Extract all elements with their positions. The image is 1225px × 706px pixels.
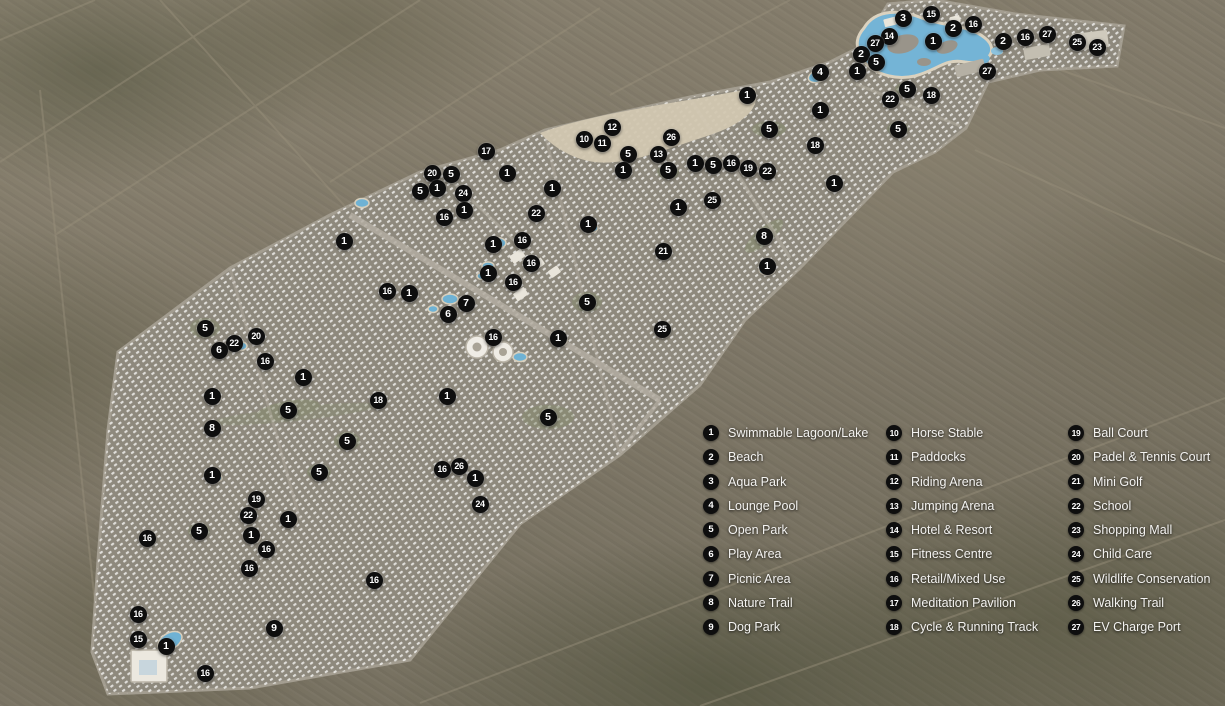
map-marker-16[interactable]: 16 bbox=[258, 541, 275, 558]
map-marker-26[interactable]: 26 bbox=[451, 458, 468, 475]
map-marker-5[interactable]: 5 bbox=[339, 433, 356, 450]
map-marker-26[interactable]: 26 bbox=[663, 129, 680, 146]
map-marker-20[interactable]: 20 bbox=[424, 165, 441, 182]
map-marker-1[interactable]: 1 bbox=[336, 233, 353, 250]
map-marker-19[interactable]: 19 bbox=[248, 491, 265, 508]
map-marker-1[interactable]: 1 bbox=[480, 265, 497, 282]
map-marker-1[interactable]: 1 bbox=[204, 467, 221, 484]
map-marker-5[interactable]: 5 bbox=[899, 81, 916, 98]
map-marker-6[interactable]: 6 bbox=[440, 306, 457, 323]
map-marker-16[interactable]: 16 bbox=[436, 209, 453, 226]
map-marker-5[interactable]: 5 bbox=[412, 183, 429, 200]
map-marker-16[interactable]: 16 bbox=[505, 274, 522, 291]
map-marker-16[interactable]: 16 bbox=[130, 606, 147, 623]
map-marker-15[interactable]: 15 bbox=[130, 631, 147, 648]
map-marker-1[interactable]: 1 bbox=[544, 180, 561, 197]
map-marker-1[interactable]: 1 bbox=[759, 258, 776, 275]
map-marker-19[interactable]: 19 bbox=[740, 160, 757, 177]
map-marker-5[interactable]: 5 bbox=[443, 166, 460, 183]
map-marker-16[interactable]: 16 bbox=[241, 560, 258, 577]
map-marker-16[interactable]: 16 bbox=[197, 665, 214, 682]
map-marker-2[interactable]: 2 bbox=[995, 33, 1012, 50]
map-marker-2[interactable]: 2 bbox=[853, 46, 870, 63]
map-marker-11[interactable]: 11 bbox=[594, 135, 611, 152]
map-marker-24[interactable]: 24 bbox=[472, 496, 489, 513]
map-marker-5[interactable]: 5 bbox=[280, 402, 297, 419]
map-marker-23[interactable]: 23 bbox=[1089, 39, 1106, 56]
map-marker-3[interactable]: 3 bbox=[895, 10, 912, 27]
map-marker-22[interactable]: 22 bbox=[240, 507, 257, 524]
map-marker-1[interactable]: 1 bbox=[158, 638, 175, 655]
map-marker-5[interactable]: 5 bbox=[197, 320, 214, 337]
map-marker-16[interactable]: 16 bbox=[379, 283, 396, 300]
map-marker-1[interactable]: 1 bbox=[849, 63, 866, 80]
map-marker-8[interactable]: 8 bbox=[756, 228, 773, 245]
map-marker-1[interactable]: 1 bbox=[485, 236, 502, 253]
map-marker-1[interactable]: 1 bbox=[826, 175, 843, 192]
map-marker-1[interactable]: 1 bbox=[615, 162, 632, 179]
map-marker-1[interactable]: 1 bbox=[670, 199, 687, 216]
map-marker-18[interactable]: 18 bbox=[807, 137, 824, 154]
map-marker-22[interactable]: 22 bbox=[528, 205, 545, 222]
map-marker-24[interactable]: 24 bbox=[455, 185, 472, 202]
map-marker-4[interactable]: 4 bbox=[812, 64, 829, 81]
map-marker-12[interactable]: 12 bbox=[604, 119, 621, 136]
map-marker-5[interactable]: 5 bbox=[705, 157, 722, 174]
map-marker-27[interactable]: 27 bbox=[1039, 26, 1056, 43]
map-marker-1[interactable]: 1 bbox=[439, 388, 456, 405]
map-marker-1[interactable]: 1 bbox=[295, 369, 312, 386]
map-marker-5[interactable]: 5 bbox=[620, 146, 637, 163]
map-marker-2[interactable]: 2 bbox=[945, 20, 962, 37]
map-marker-1[interactable]: 1 bbox=[204, 388, 221, 405]
map-marker-16[interactable]: 16 bbox=[366, 572, 383, 589]
map-marker-27[interactable]: 27 bbox=[979, 63, 996, 80]
map-marker-9[interactable]: 9 bbox=[266, 620, 283, 637]
map-marker-16[interactable]: 16 bbox=[523, 255, 540, 272]
map-marker-5[interactable]: 5 bbox=[660, 162, 677, 179]
map-marker-22[interactable]: 22 bbox=[226, 335, 243, 352]
map-marker-22[interactable]: 22 bbox=[882, 91, 899, 108]
map-marker-16[interactable]: 16 bbox=[965, 16, 982, 33]
map-marker-1[interactable]: 1 bbox=[467, 470, 484, 487]
map-marker-1[interactable]: 1 bbox=[580, 216, 597, 233]
map-marker-20[interactable]: 20 bbox=[248, 328, 265, 345]
map-marker-1[interactable]: 1 bbox=[739, 87, 756, 104]
map-marker-1[interactable]: 1 bbox=[243, 527, 260, 544]
map-marker-10[interactable]: 10 bbox=[576, 131, 593, 148]
map-marker-1[interactable]: 1 bbox=[429, 180, 446, 197]
map-marker-7[interactable]: 7 bbox=[458, 295, 475, 312]
map-marker-21[interactable]: 21 bbox=[655, 243, 672, 260]
map-marker-5[interactable]: 5 bbox=[890, 121, 907, 138]
map-marker-15[interactable]: 15 bbox=[923, 6, 940, 23]
map-marker-1[interactable]: 1 bbox=[550, 330, 567, 347]
map-marker-16[interactable]: 16 bbox=[485, 329, 502, 346]
map-marker-16[interactable]: 16 bbox=[139, 530, 156, 547]
map-marker-1[interactable]: 1 bbox=[687, 155, 704, 172]
masterplan-map: 1531622714161225272325142751812211255261… bbox=[0, 0, 1225, 706]
map-marker-8[interactable]: 8 bbox=[204, 420, 221, 437]
map-marker-1[interactable]: 1 bbox=[812, 102, 829, 119]
map-marker-18[interactable]: 18 bbox=[370, 392, 387, 409]
map-marker-1[interactable]: 1 bbox=[499, 165, 516, 182]
map-marker-5[interactable]: 5 bbox=[191, 523, 208, 540]
map-marker-5[interactable]: 5 bbox=[579, 294, 596, 311]
map-marker-6[interactable]: 6 bbox=[211, 342, 228, 359]
map-marker-5[interactable]: 5 bbox=[540, 409, 557, 426]
map-marker-18[interactable]: 18 bbox=[923, 87, 940, 104]
map-marker-25[interactable]: 25 bbox=[704, 192, 721, 209]
map-marker-16[interactable]: 16 bbox=[1017, 29, 1034, 46]
map-markers-layer: 1531622714161225272325142751812211255261… bbox=[0, 0, 1225, 706]
map-marker-22[interactable]: 22 bbox=[759, 163, 776, 180]
map-marker-25[interactable]: 25 bbox=[654, 321, 671, 338]
map-marker-1[interactable]: 1 bbox=[280, 511, 297, 528]
map-marker-5[interactable]: 5 bbox=[311, 464, 328, 481]
map-marker-1[interactable]: 1 bbox=[925, 33, 942, 50]
map-marker-17[interactable]: 17 bbox=[478, 143, 495, 160]
map-marker-16[interactable]: 16 bbox=[257, 353, 274, 370]
map-marker-5[interactable]: 5 bbox=[868, 54, 885, 71]
map-marker-5[interactable]: 5 bbox=[761, 121, 778, 138]
map-marker-1[interactable]: 1 bbox=[401, 285, 418, 302]
map-marker-16[interactable]: 16 bbox=[434, 461, 451, 478]
map-marker-16[interactable]: 16 bbox=[723, 155, 740, 172]
map-marker-25[interactable]: 25 bbox=[1069, 34, 1086, 51]
map-marker-27[interactable]: 27 bbox=[867, 35, 884, 52]
map-marker-1[interactable]: 1 bbox=[456, 202, 473, 219]
map-marker-13[interactable]: 13 bbox=[650, 146, 667, 163]
map-marker-16[interactable]: 16 bbox=[514, 232, 531, 249]
